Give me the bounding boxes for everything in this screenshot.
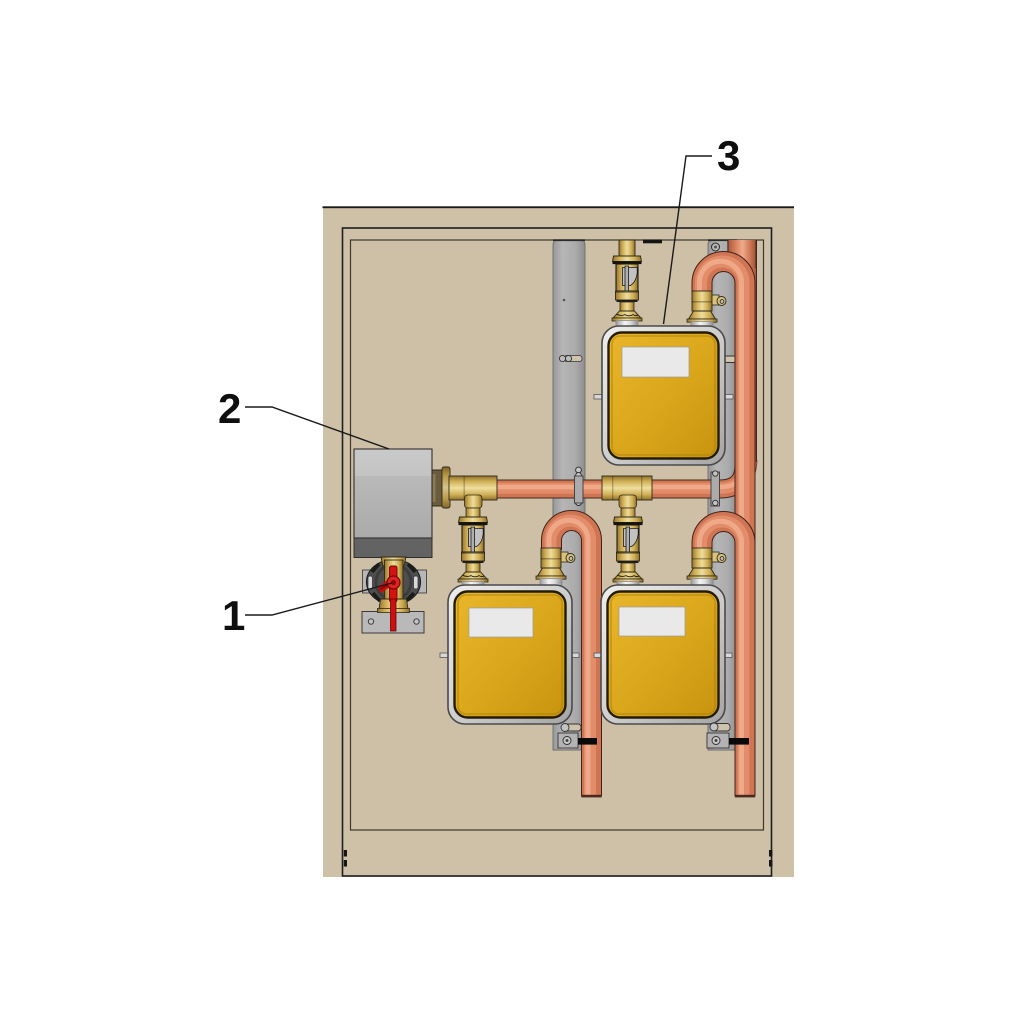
svg-text:1: 1 xyxy=(222,592,245,639)
svg-text:2: 2 xyxy=(218,385,241,432)
svg-text:3: 3 xyxy=(717,132,740,179)
